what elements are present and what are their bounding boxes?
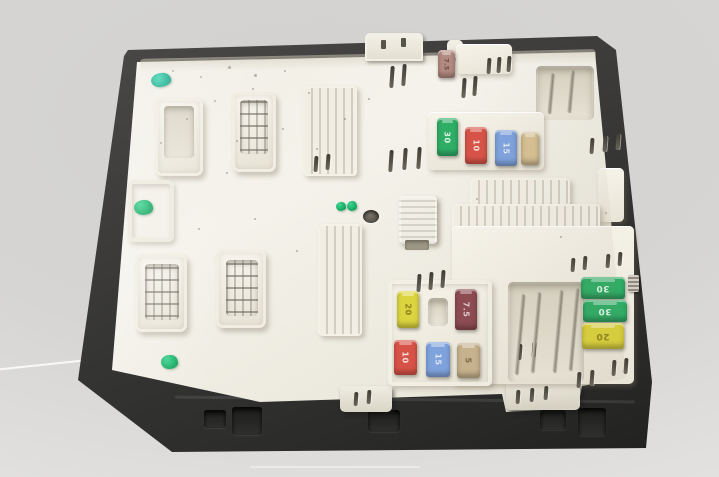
connector-socket-cavity xyxy=(240,100,268,154)
fuse-amp-label: 10 xyxy=(471,139,480,151)
fuse-amp-label: 30 xyxy=(443,131,452,143)
paint-mark xyxy=(336,202,346,211)
fuse-amp-label: 15 xyxy=(501,142,510,154)
fuse-30a: 30 xyxy=(583,300,627,322)
background-scratch xyxy=(250,466,420,468)
fuse-amp-label: 30 xyxy=(598,306,612,316)
fuse-amp-label: 7.5 xyxy=(461,302,470,318)
comb-connector xyxy=(470,178,570,206)
case-mount-tab xyxy=(540,410,566,430)
fuse-amp-label: 20 xyxy=(596,331,610,341)
paint-mark xyxy=(134,200,153,215)
comb-connector xyxy=(318,224,362,336)
connector-block xyxy=(598,168,624,222)
tab-slot-mark xyxy=(401,38,406,47)
connector-socket-cavity xyxy=(145,264,179,320)
case-mount-tab xyxy=(232,407,262,435)
paint-mark xyxy=(347,201,357,211)
tray-foot xyxy=(340,386,392,412)
connector-socket-cavity xyxy=(226,260,258,316)
fuse-30a: 30 xyxy=(581,277,625,299)
fuse-20a: 20 xyxy=(582,323,624,349)
relay-base-lip xyxy=(405,240,429,250)
case-mount-tab xyxy=(368,410,400,432)
fuse-15a: 15 xyxy=(426,342,450,377)
fuse-amp-label: 20 xyxy=(403,303,412,315)
connector-block xyxy=(456,44,512,74)
mounting-hole xyxy=(363,210,379,223)
screw-detail xyxy=(628,275,639,292)
fuse-20a: 20 xyxy=(397,291,419,328)
comb-connector xyxy=(303,86,357,176)
fuse-10a: 10 xyxy=(394,340,417,375)
fuse-15a: 15 xyxy=(495,130,517,166)
relay-module xyxy=(399,196,437,244)
fuse-5a: 5 xyxy=(457,343,480,378)
tab-slot-mark xyxy=(381,40,386,49)
cluster-center-well xyxy=(428,298,448,326)
fuse-30a: 30 xyxy=(437,118,458,156)
fuse-amp-label: 30 xyxy=(596,283,610,293)
fuse-amp-label: 10 xyxy=(401,351,410,363)
fuse-7-5a: 7.5 xyxy=(438,50,455,78)
paint-mark xyxy=(161,355,178,369)
photo-canvas: 7.5 30 10 15 20 7.5 10 15 5 30 30 20 xyxy=(0,0,719,477)
fuse-blank xyxy=(521,132,539,165)
tray-top-tab xyxy=(365,33,423,61)
tray-foot xyxy=(506,382,580,410)
case-mount-tab xyxy=(204,410,226,428)
fuse-amp-label: 15 xyxy=(433,353,442,365)
case-mount-tab xyxy=(578,408,606,436)
fuse-amp-label: 7.5 xyxy=(443,58,450,70)
fuse-amp-label: 5 xyxy=(464,357,473,363)
fuse-10a: 10 xyxy=(465,127,487,164)
connector-cavity xyxy=(508,282,584,382)
fuse-7-5a: 7.5 xyxy=(455,289,477,330)
connector-socket-cavity xyxy=(164,106,194,158)
connector-cavity xyxy=(536,66,594,120)
background-scratch xyxy=(0,359,87,371)
